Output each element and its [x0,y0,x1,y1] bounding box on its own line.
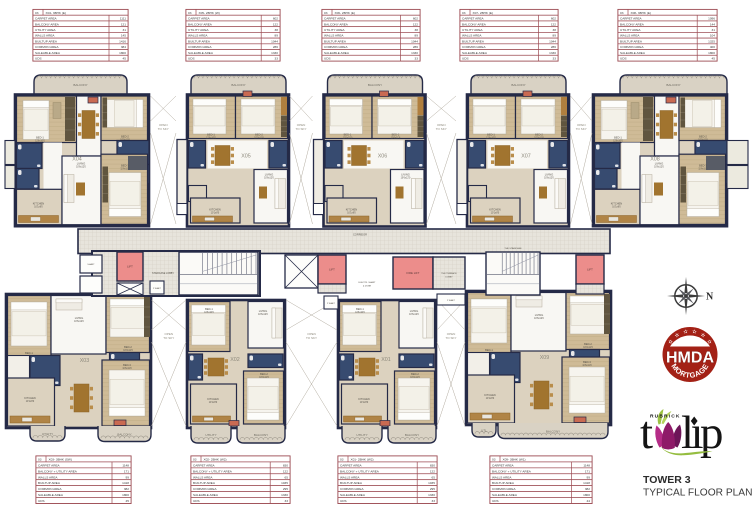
svg-text:BALCONY: BALCONY [546,429,560,433]
svg-text:400: 400 [710,45,715,49]
svg-text:BALCONY AREA: BALCONY AREA [188,22,213,26]
svg-text:X02- 2BHK (W2): X02- 2BHK (W2) [204,458,227,462]
svg-text:X04- 3BHK (E): X04- 3BHK (E) [46,11,66,15]
svg-text:X06: X06 [378,154,388,160]
svg-text:BUILTUP AREA: BUILTUP AREA [462,39,485,43]
svg-text:99: 99 [587,475,591,479]
svg-text:LIVING: LIVING [401,173,410,177]
svg-text:10'6x12'0: 10'6x12'0 [544,178,554,180]
svg-text:P SHAFT: P SHAFT [153,287,162,290]
svg-text:BED-2: BED-2 [124,345,132,349]
svg-text:11'6x11'0: 11'6x11'0 [122,368,132,370]
svg-text:KITCHEN: KITCHEN [24,396,36,400]
svg-text:THE TERRACE: THE TERRACE [441,272,457,275]
svg-text:THE STAIRCASE: THE STAIRCASE [504,247,522,250]
svg-text:1035: 1035 [428,481,435,485]
svg-text:X04: X04 [72,157,82,163]
svg-text:WALLS AREA: WALLS AREA [340,475,360,479]
svg-text:LIFT: LIFT [329,268,335,272]
svg-text:1330: 1330 [271,51,278,55]
svg-text:10'6x12'0: 10'6x12'0 [258,314,268,316]
svg-text:WALLS AREA: WALLS AREA [620,34,640,38]
svg-text:384: 384 [121,45,126,49]
svg-text:295: 295 [283,487,288,491]
svg-text:BALCONY + UTILITY AREA: BALCONY + UTILITY AREA [193,469,233,473]
svg-text:31: 31 [712,28,716,32]
svg-text:1148: 1148 [583,463,590,467]
svg-text:BALCONY AREA: BALCONY AREA [35,22,60,26]
svg-text:UTL: UTL [481,429,487,433]
svg-text:SALEABLE AREA: SALEABLE AREA [462,51,488,55]
svg-text:1044: 1044 [271,39,278,43]
svg-text:BUILTUP AREA: BUILTUP AREA [188,39,211,43]
svg-text:UDS: UDS [324,57,331,61]
svg-text:BALCONY + UTILITY AREA: BALCONY + UTILITY AREA [340,469,380,473]
svg-text:COMMON AREA: COMMON AREA [324,45,348,49]
svg-text:03: 03 [340,458,344,462]
svg-text:03: 03 [38,458,42,462]
svg-text:BED-2: BED-2 [411,372,419,376]
svg-text:382: 382 [124,487,129,491]
svg-text:BED-1: BED-1 [485,348,493,352]
svg-text:BED-1: BED-1 [36,136,44,140]
svg-text:X09- 3BHK (W1): X09- 3BHK (W1) [503,458,526,462]
svg-text:11'6x10'0: 11'6x10'0 [35,141,45,143]
svg-text:BALCONY: BALCONY [405,433,419,437]
svg-text:BUILTUP AREA: BUILTUP AREA [38,481,61,485]
svg-text:CARPET AREA: CARPET AREA [620,17,643,21]
svg-text:BED-2: BED-2 [584,342,592,346]
svg-text:104: 104 [710,34,715,38]
svg-text:p: p [700,407,724,459]
svg-text:SALEABLE AREA: SALEABLE AREA [620,51,646,55]
svg-text:1044: 1044 [549,39,556,43]
svg-text:SHAFT: SHAFT [87,263,95,266]
svg-text:03: 03 [35,11,39,15]
svg-text:WALLS AREA: WALLS AREA [492,475,512,479]
svg-text:KITCHEN: KITCHEN [484,393,496,397]
svg-text:10'6x12'0: 10'6x12'0 [409,314,419,316]
svg-text:10'0x11'6: 10'0x11'6 [583,347,593,349]
svg-text:BUILTUP AREA: BUILTUP AREA [340,481,363,485]
svg-text:BUILTUP AREA: BUILTUP AREA [35,39,58,43]
svg-text:830: 830 [283,463,288,467]
svg-text:COMMON AREA: COMMON AREA [193,487,217,491]
svg-text:44: 44 [587,499,591,503]
svg-text:BED-2: BED-2 [121,135,129,139]
svg-text:38: 38 [415,28,419,32]
svg-text:33: 33 [553,57,557,61]
svg-text:11'6x10'0: 11'6x10'0 [204,312,214,314]
svg-text:1330: 1330 [428,493,435,497]
svg-text:BALCONY: BALCONY [511,83,525,87]
svg-text:LIFT: LIFT [127,265,133,269]
svg-text:UDS: UDS [340,499,347,503]
svg-text:CARPET AREA: CARPET AREA [324,17,347,21]
svg-text:BALCONY: BALCONY [368,83,382,87]
svg-text:171: 171 [585,469,590,473]
svg-text:BUILTUP AREA: BUILTUP AREA [492,481,515,485]
svg-text:03: 03 [620,11,624,15]
svg-text:33: 33 [415,57,419,61]
svg-text:03: 03 [324,11,328,15]
svg-text:1800: 1800 [119,51,126,55]
svg-text:286: 286 [551,45,556,49]
svg-text:WALLS AREA: WALLS AREA [38,475,58,479]
svg-text:HMDA: HMDA [666,350,714,367]
svg-text:10'0x11'6: 10'0x11'6 [391,138,401,140]
svg-text:602: 602 [413,17,418,21]
svg-text:45: 45 [712,57,716,61]
svg-text:TO SKY: TO SKY [576,127,587,131]
svg-text:X09: X09 [540,355,550,361]
svg-text:KITCHEN: KITCHEN [209,208,221,212]
svg-text:11'6x11'0: 11'6x11'0 [698,169,708,171]
svg-text:1330: 1330 [411,51,418,55]
svg-text:602: 602 [273,17,278,21]
svg-text:SALEABLE AREA: SALEABLE AREA [35,51,61,55]
svg-text:BED-1: BED-1 [487,133,495,137]
svg-text:BED-2: BED-2 [699,135,707,139]
svg-text:UTILITY AREA: UTILITY AREA [188,28,210,32]
svg-text:10'0x11'6: 10'0x11'6 [259,377,269,379]
svg-text:COMMON AREA: COMMON AREA [492,487,516,491]
svg-text:03: 03 [462,11,466,15]
svg-text:122: 122 [273,22,278,26]
svg-text:X05: X05 [241,154,251,160]
svg-text:BED-1: BED-1 [344,133,352,137]
svg-text:10'6x12'0: 10'6x12'0 [76,167,86,169]
svg-text:171: 171 [124,469,129,473]
svg-text:CARPET AREA: CARPET AREA [492,463,515,467]
svg-text:65: 65 [432,475,436,479]
svg-text:10'1x8'0: 10'1x8'0 [211,213,220,215]
svg-text:WALLS AREA: WALLS AREA [462,34,482,38]
svg-text:BED-1: BED-1 [614,136,622,140]
svg-text:10'1x8'0: 10'1x8'0 [612,207,621,209]
svg-text:BED-2: BED-2 [255,133,263,137]
svg-text:144: 144 [710,22,715,26]
svg-text:X01- 2BHK (W2): X01- 2BHK (W2) [351,458,374,462]
svg-text:COMMON AREA: COMMON AREA [620,45,644,49]
svg-text:UDS: UDS [38,499,45,503]
svg-text:LIVING: LIVING [535,313,544,317]
svg-text:UTILITY AREA: UTILITY AREA [462,28,484,32]
svg-text:38: 38 [275,28,279,32]
svg-text:1111: 1111 [120,17,126,21]
svg-text:BED-3: BED-3 [583,360,591,364]
svg-text:SALEABLE AREA: SALEABLE AREA [188,51,214,55]
svg-text:TO SKY: TO SKY [163,336,174,340]
svg-text:BED-1: BED-1 [356,307,364,311]
svg-text:1416: 1416 [119,39,126,43]
svg-text:X05- 2BHK (W): X05- 2BHK (W) [199,11,220,15]
svg-text:BALCONY: BALCONY [254,433,268,437]
svg-text:X08: X08 [650,157,660,163]
svg-text:BALCONY AREA: BALCONY AREA [324,22,349,26]
svg-text:1800: 1800 [122,493,129,497]
svg-text:CARPET AREA: CARPET AREA [188,17,211,21]
svg-text:COMMON AREA: COMMON AREA [35,45,59,49]
svg-text:LIVING: LIVING [410,309,419,313]
svg-text:03: 03 [188,11,192,15]
svg-text:BALCONY: BALCONY [117,432,131,436]
svg-text:BED-1: BED-1 [207,133,215,137]
svg-text:WALLS AREA: WALLS AREA [35,34,55,38]
svg-text:CARPET AREA: CARPET AREA [35,17,58,21]
svg-text:FIRE LIFT: FIRE LIFT [407,271,420,275]
svg-text:BUILTUP AREA: BUILTUP AREA [620,39,643,43]
svg-text:UTILITY AREA: UTILITY AREA [620,28,642,32]
svg-text:10'6x12'0: 10'6x12'0 [264,178,274,180]
svg-text:1148: 1148 [122,463,129,467]
svg-text:CORRIDOR: CORRIDOR [353,233,367,237]
svg-text:1800: 1800 [708,51,715,55]
svg-text:10'1x8'0: 10'1x8'0 [347,213,356,215]
svg-text:X08- 3BHK (E): X08- 3BHK (E) [631,11,651,15]
svg-text:11'6x10'0: 11'6x10'0 [343,138,353,140]
svg-text:TO SKY: TO SKY [158,127,169,131]
svg-text:10'1x8'0: 10'1x8'0 [360,402,369,404]
svg-text:LIVING: LIVING [259,309,268,313]
svg-text:602: 602 [551,17,556,21]
svg-text:122: 122 [551,22,556,26]
svg-text:SALEABLE AREA: SALEABLE AREA [38,493,64,497]
svg-text:UDS: UDS [620,57,627,61]
svg-text:KITCHEN: KITCHEN [207,397,219,401]
svg-text:11'6x10'0: 11'6x10'0 [355,312,365,314]
svg-text:10'0x11'6: 10'0x11'6 [254,138,264,140]
svg-text:TYPICAL FLOOR PLAN: TYPICAL FLOOR PLAN [643,488,752,499]
svg-text:TOWER 3: TOWER 3 [643,474,691,486]
svg-text:UTILITY AREA: UTILITY AREA [35,28,57,32]
svg-text:N: N [706,292,714,303]
svg-text:SALEABLE AREA: SALEABLE AREA [492,493,518,497]
svg-text:LIVING: LIVING [265,173,274,177]
svg-text:11'6x11'0: 11'6x11'0 [120,169,130,171]
svg-text:295: 295 [430,487,435,491]
svg-text:WALLS AREA: WALLS AREA [193,475,213,479]
svg-text:COMMON AREA: COMMON AREA [188,45,212,49]
svg-text:TO SKY: TO SKY [306,336,317,340]
svg-text:X01: X01 [381,357,391,363]
svg-text:UDS: UDS [188,57,195,61]
svg-text:X03- 3BHK (SW): X03- 3BHK (SW) [49,458,72,462]
svg-text:KITCHEN: KITCHEN [33,202,45,206]
svg-text:ELECTR. SHAFT: ELECTR. SHAFT [358,281,376,284]
svg-text:121: 121 [121,22,126,26]
svg-text:45: 45 [123,57,127,61]
svg-text:BED-2: BED-2 [260,372,268,376]
svg-text:11'6x10'0: 11'6x10'0 [486,138,496,140]
svg-text:122: 122 [283,469,288,473]
svg-text:10'1x8'0: 10'1x8'0 [491,213,500,215]
svg-text:10'6x12'0: 10'6x12'0 [534,318,544,320]
svg-text:UTILITY: UTILITY [356,433,367,437]
svg-text:P SHAFT: P SHAFT [447,299,456,302]
svg-text:286: 286 [273,45,278,49]
svg-text:KITCHEN: KITCHEN [346,208,358,212]
svg-text:BALCONY AREA: BALCONY AREA [462,22,487,26]
svg-text:286: 286 [413,45,418,49]
svg-text:TO SKY: TO SKY [436,127,447,131]
svg-text:65: 65 [285,475,289,479]
svg-text:LIVING: LIVING [75,316,84,320]
svg-text:1325: 1325 [708,39,715,43]
svg-text:X02: X02 [230,357,240,363]
svg-text:CARPET AREA: CARPET AREA [38,463,61,467]
svg-text:03: 03 [193,458,197,462]
svg-text:1800: 1800 [583,493,590,497]
svg-text:11'6x11'0: 11'6x11'0 [582,365,592,367]
svg-text:BALCONY + UTILITY AREA: BALCONY + UTILITY AREA [492,469,532,473]
svg-text:WALLS AREA: WALLS AREA [188,34,208,38]
svg-text:COMMON AREA: COMMON AREA [340,487,364,491]
svg-text:UTILITY: UTILITY [42,432,53,436]
svg-text:33: 33 [432,499,436,503]
svg-text:UDS: UDS [193,499,200,503]
svg-text:10'0x11'6: 10'0x11'6 [410,377,420,379]
svg-text:1418: 1418 [122,481,129,485]
svg-text:X07- 2BHK (E): X07- 2BHK (E) [473,11,493,15]
svg-text:STAIRCASE LOBBY: STAIRCASE LOBBY [152,272,174,275]
svg-text:X06- 2BHK (E): X06- 2BHK (E) [335,11,355,15]
svg-text:89: 89 [415,34,419,38]
svg-text:145: 145 [121,34,126,38]
svg-text:1035: 1035 [281,481,288,485]
svg-text:03: 03 [492,458,496,462]
svg-text:RUBRICK: RUBRICK [650,414,681,420]
svg-text:830: 830 [430,463,435,467]
svg-text:122: 122 [430,469,435,473]
svg-text:UDS: UDS [462,57,469,61]
svg-text:KITCHEN: KITCHEN [611,202,623,206]
svg-text:TO SKY: TO SKY [296,127,307,131]
svg-text:31: 31 [123,28,127,32]
svg-text:UDS: UDS [35,57,42,61]
svg-text:10'0x11'6: 10'0x11'6 [123,350,133,352]
svg-text:BED-1: BED-1 [25,351,33,355]
svg-text:99: 99 [126,475,130,479]
svg-text:10'6x12'0: 10'6x12'0 [401,178,411,180]
svg-text:CARPET AREA: CARPET AREA [462,17,485,21]
svg-text:10'1x8'0: 10'1x8'0 [486,398,495,400]
svg-text:X07: X07 [521,154,531,160]
svg-text:LIVING: LIVING [545,173,554,177]
svg-text:10'6x12'0: 10'6x12'0 [654,167,664,169]
svg-text:TO SKY: TO SKY [446,336,457,340]
svg-text:CARPET AREA: CARPET AREA [193,463,216,467]
svg-text:89: 89 [275,34,279,38]
svg-text:BED-2: BED-2 [392,133,400,137]
svg-text:1330: 1330 [281,493,288,497]
svg-text:BALCONY: BALCONY [231,83,245,87]
svg-text:382: 382 [585,487,590,491]
svg-text:BALCONY: BALCONY [73,83,87,87]
svg-text:45: 45 [126,499,130,503]
svg-text:BALCONY + UTILITY AREA: BALCONY + UTILITY AREA [38,469,78,473]
svg-text:10'1x8'0: 10'1x8'0 [209,402,218,404]
svg-text:BED-3: BED-3 [699,164,707,168]
svg-text:SALEABLE AREA: SALEABLE AREA [193,493,219,497]
svg-text:BED-2: BED-2 [535,133,543,137]
svg-text:SALEABLE AREA: SALEABLE AREA [324,51,350,55]
svg-text:P SHAFT: P SHAFT [327,302,336,305]
svg-text:& DOBE: & DOBE [363,286,372,288]
svg-text:COMMON AREA: COMMON AREA [462,45,486,49]
svg-text:X03: X03 [80,358,90,364]
svg-text:CARPET AREA: CARPET AREA [340,463,363,467]
svg-text:10'1x8'0: 10'1x8'0 [26,401,35,403]
svg-text:38: 38 [553,28,557,32]
svg-text:1330: 1330 [549,51,556,55]
svg-text:33: 33 [275,57,279,61]
svg-text:11'6x10'0: 11'6x10'0 [206,138,216,140]
svg-text:1096: 1096 [708,17,715,21]
svg-text:1418: 1418 [583,481,590,485]
svg-text:89: 89 [553,34,557,38]
svg-text:1044: 1044 [411,39,418,43]
svg-text:UTILITY AREA: UTILITY AREA [324,28,346,32]
svg-text:BUILTUP AREA: BUILTUP AREA [324,39,347,43]
svg-text:COMMON AREA: COMMON AREA [38,487,62,491]
svg-text:BALCONY AREA: BALCONY AREA [620,22,645,26]
svg-text:KITCHEN: KITCHEN [358,397,370,401]
svg-text:11'6x10'0: 11'6x10'0 [613,141,623,143]
svg-text:BALCONY: BALCONY [666,83,680,87]
svg-text:LOBBY: LOBBY [445,277,453,279]
svg-text:122: 122 [413,22,418,26]
svg-text:UTILITY: UTILITY [205,433,216,437]
svg-text:WALLS AREA: WALLS AREA [324,34,344,38]
svg-text:BED-3: BED-3 [123,363,131,367]
svg-text:KITCHEN: KITCHEN [489,208,501,212]
svg-text:UDS: UDS [492,499,499,503]
svg-text:BUILTUP AREA: BUILTUP AREA [193,481,216,485]
svg-text:BED-3: BED-3 [121,164,129,168]
svg-text:10'6x12'0: 10'6x12'0 [74,321,84,323]
svg-text:SALEABLE AREA: SALEABLE AREA [340,493,366,497]
svg-text:10'1x8'0: 10'1x8'0 [34,207,43,209]
svg-text:33: 33 [285,499,289,503]
svg-text:BED-1: BED-1 [205,307,213,311]
svg-text:10'0x11'6: 10'0x11'6 [534,138,544,140]
svg-text:LIFT: LIFT [587,268,593,272]
